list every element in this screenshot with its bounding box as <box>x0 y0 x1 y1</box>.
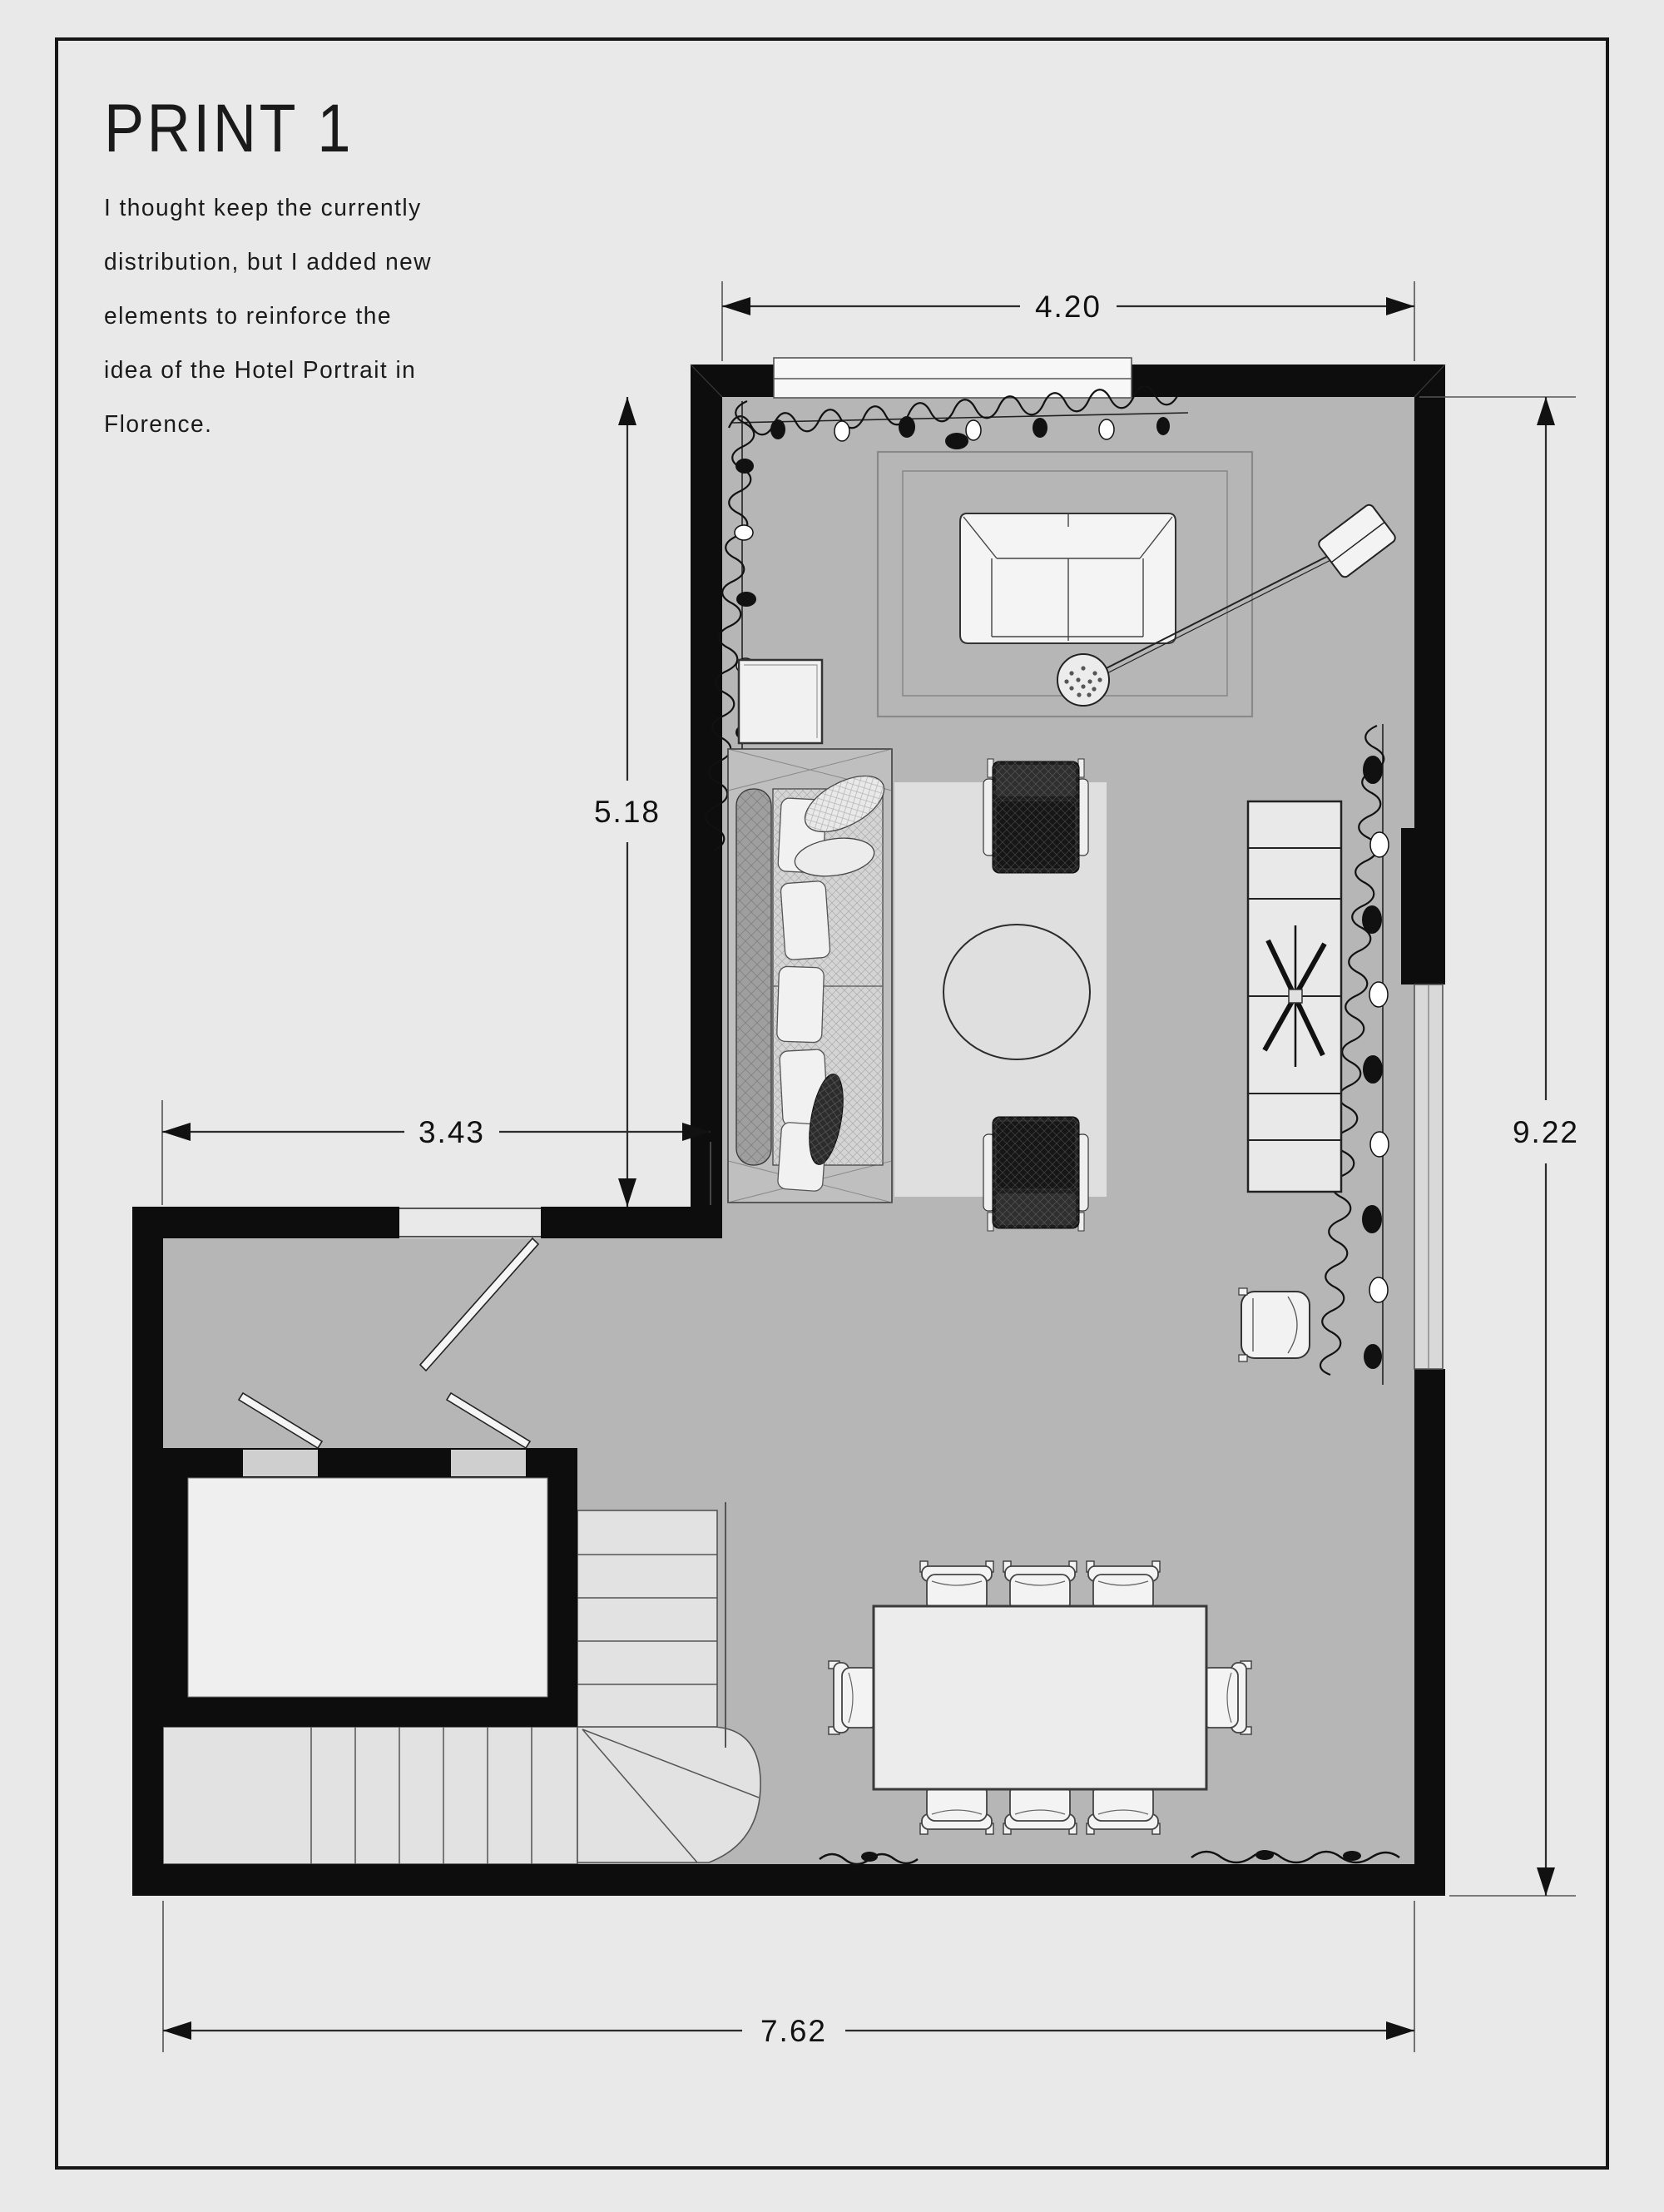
wall-bottom <box>132 1864 1445 1896</box>
dimension-top: 4.20 <box>722 281 1414 361</box>
dining-chair <box>1087 1784 1160 1834</box>
stair-right-run <box>577 1510 717 1727</box>
chaise-sofa <box>728 749 893 1203</box>
sliding-door-right <box>1414 984 1443 1369</box>
dining-chair <box>1003 1561 1077 1611</box>
coffee-table <box>943 925 1090 1059</box>
floor-plan: 4.20 5.18 3.43 <box>0 0 1664 2212</box>
dim-label-mid-left: 3.43 <box>418 1115 485 1149</box>
room-door-opening <box>451 1450 526 1476</box>
wall-right-lower <box>1414 1369 1445 1896</box>
wall-step-right <box>541 1207 722 1238</box>
armchair-top <box>983 759 1088 873</box>
dimension-upper-left: 5.18 <box>594 397 661 1207</box>
wall-left-upper <box>691 365 722 1238</box>
dining-chair <box>1003 1784 1077 1834</box>
side-table <box>739 660 822 743</box>
dim-label-bottom: 7.62 <box>760 2014 827 2048</box>
cabinet <box>1248 801 1341 1192</box>
dining-chair <box>1201 1661 1251 1734</box>
stair-winder <box>577 1727 760 1862</box>
dim-label-right: 9.22 <box>1513 1115 1579 1149</box>
dining-table <box>874 1606 1206 1789</box>
stair-lower-run <box>163 1727 577 1864</box>
room-door-opening <box>243 1450 318 1476</box>
dim-label-top: 4.20 <box>1035 290 1102 324</box>
dining-chair <box>829 1661 879 1734</box>
sofa-window <box>960 513 1176 643</box>
wall-right-upper <box>1414 365 1445 828</box>
dimension-bottom: 7.62 <box>163 1901 1414 2052</box>
dining-chair <box>920 1561 993 1611</box>
window-top <box>774 358 1132 398</box>
dining-chair <box>1087 1561 1160 1611</box>
drawing-sheet: PRINT 1 I thought keep the currently dis… <box>0 0 1664 2212</box>
small-chair <box>1239 1288 1310 1361</box>
armchair-bottom <box>983 1117 1088 1231</box>
wall-top-right <box>1132 365 1445 397</box>
dining-chair <box>920 1784 993 1834</box>
dim-label-upper-left: 5.18 <box>594 795 661 829</box>
wall-right-door-jamb <box>1401 828 1445 984</box>
wall-step-left <box>132 1207 399 1238</box>
